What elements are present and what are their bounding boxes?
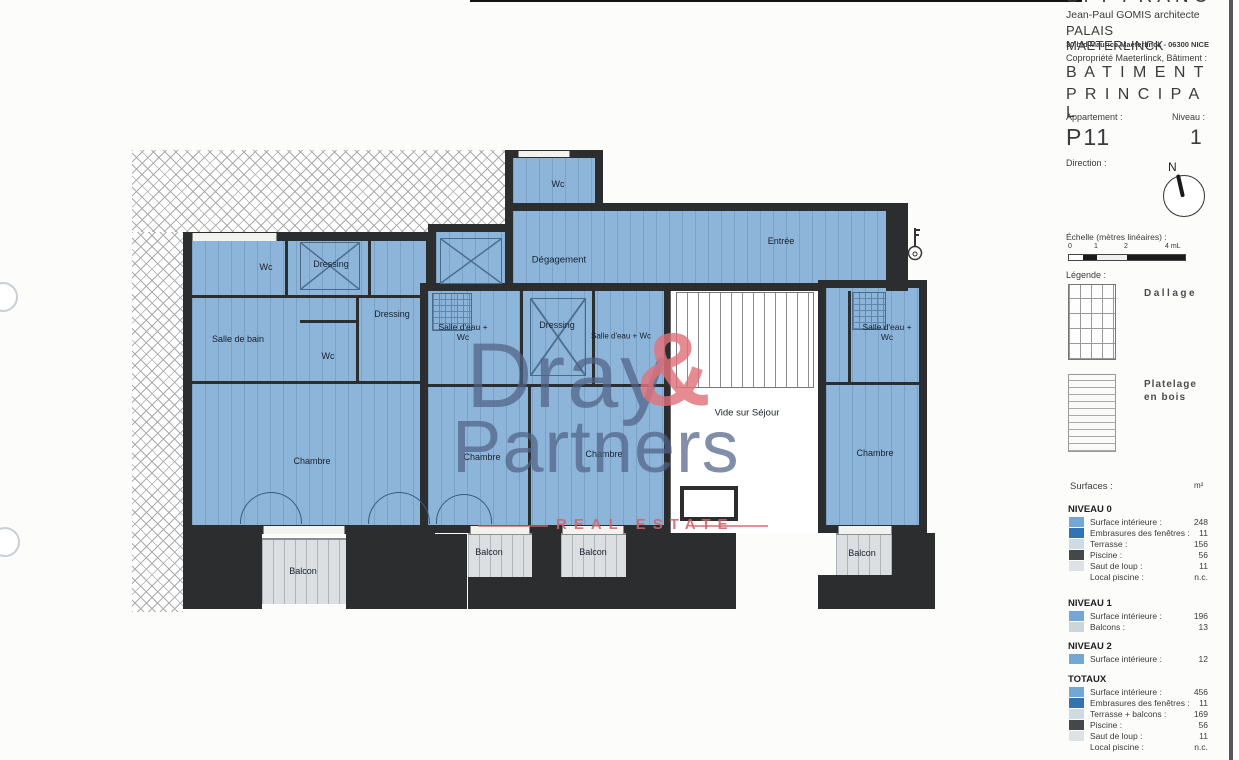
room-label: Dégagement <box>532 256 586 267</box>
surface-row-value: n.c. <box>1194 572 1208 582</box>
scale-tick: 4 mL <box>1165 243 1181 250</box>
swatch <box>1069 742 1084 752</box>
room-label: Dressing <box>539 320 575 330</box>
niveau-value: 1 <box>1190 126 1202 150</box>
surface-row-label: Piscine : <box>1090 550 1122 560</box>
compass: N <box>1066 160 1212 220</box>
surface-row-value: 13 <box>1199 622 1208 632</box>
room-label: Salle d'eau + Wc <box>434 323 492 343</box>
building-address: 30 bld Maurice Maeterlinck - 06300 NICE <box>1066 40 1209 49</box>
room-label: Dressing <box>313 259 349 269</box>
corridor-entree-block <box>505 203 908 291</box>
wall-segment <box>346 534 467 609</box>
surface-row-label: Surface intérieure : <box>1090 611 1162 621</box>
wall-segment <box>183 534 262 609</box>
swatch <box>1069 572 1084 582</box>
section-title: NIVEAU 1 <box>1068 598 1112 609</box>
room-label: Chambre <box>856 448 893 458</box>
room-label: Balcon <box>289 566 317 576</box>
company-name-clipped: SPI FRANCE <box>1066 0 1212 9</box>
surface-row-value: 456 <box>1194 687 1208 697</box>
window-opening <box>518 151 570 157</box>
surface-row-label: Saut de loup : <box>1090 561 1142 571</box>
wall-segment <box>532 533 561 577</box>
surface-row-label: Saut de loup : <box>1090 731 1142 741</box>
room-label: Wc <box>260 262 273 272</box>
surface-row-label: Surface intérieure : <box>1090 687 1162 697</box>
surface-row-value: 156 <box>1194 539 1208 549</box>
surfaces-unit: m² <box>1194 481 1203 490</box>
surface-row-value: 56 <box>1199 720 1208 730</box>
swatch <box>1069 654 1084 664</box>
title-block: SPI FRANCE Jean-Paul GOMIS architecte PA… <box>1066 0 1212 760</box>
surface-row-value: 12 <box>1199 654 1208 664</box>
scale-ticks: 0 1 2 4 mL <box>1068 243 1188 252</box>
partition-wall <box>368 241 371 297</box>
room-label: Salle d'eau + Wc <box>858 323 916 343</box>
section-title: NIVEAU 2 <box>1068 641 1112 652</box>
surface-row-label: Embrasures des fenêtres : <box>1090 528 1190 538</box>
room-label: Entrée <box>768 236 795 246</box>
swatch <box>1069 539 1084 549</box>
surface-row-label: Balcons : <box>1090 622 1125 632</box>
room-label: Salle de bain <box>212 334 264 344</box>
partition-wall <box>826 382 919 385</box>
partition-wall <box>356 297 359 383</box>
surface-row-label: Terrasse + balcons : <box>1090 709 1166 719</box>
swatch <box>1069 622 1084 632</box>
wood-planks-pattern-swatch <box>1068 374 1116 452</box>
room-label: Wc <box>552 179 565 189</box>
architect-line: Jean-Paul GOMIS architecte <box>1066 9 1200 21</box>
room-label: Chambre <box>463 452 500 462</box>
surface-row-value: 11 <box>1199 698 1208 708</box>
swatch <box>1069 720 1084 730</box>
surfaces-label: Surfaces : <box>1070 481 1113 492</box>
scale-label: Échelle (mètres linéaires) : <box>1066 232 1167 242</box>
window-opening <box>192 233 277 241</box>
wall-segment <box>818 575 892 609</box>
surface-row-label: Surface intérieure : <box>1090 654 1162 664</box>
dallage-pattern-swatch <box>1068 284 1116 360</box>
room-label: Vide sur Séjour <box>715 409 780 420</box>
surface-row-value: 11 <box>1199 561 1208 571</box>
section-title: TOTAUX <box>1068 674 1106 685</box>
surface-row-label: Embrasures des fenêtres : <box>1090 698 1190 708</box>
room-label: Wc <box>322 351 335 361</box>
scale-tick: 1 <box>1094 243 1098 250</box>
partition-wall <box>848 291 851 383</box>
appartement-label: Appartement : <box>1066 112 1123 122</box>
wall-segment <box>626 533 736 609</box>
wall-segment <box>468 577 626 609</box>
room-label: Balcon <box>475 547 503 557</box>
room-label: Salle d'eau + Wc <box>591 331 651 340</box>
partition-wall <box>192 295 426 298</box>
floor-plan: Wc Dégagement Entrée Wc Dressing Dressin… <box>0 0 1066 760</box>
terrace-hatch-area <box>132 150 506 233</box>
window-opening <box>470 526 530 534</box>
room-label: Balcon <box>579 547 607 557</box>
saut-de-loup-box <box>680 486 738 521</box>
copropriete-line: Copropriété Maeterlinck, Bâtiment : <box>1066 53 1207 63</box>
swatch <box>1069 517 1084 527</box>
wardrobe-symbol <box>440 238 502 284</box>
swatch <box>1069 561 1084 571</box>
surface-row-value: 169 <box>1194 709 1208 719</box>
surface-row-value: 11 <box>1199 731 1208 741</box>
window-opening <box>562 526 624 534</box>
surface-row-label: Surface intérieure : <box>1090 517 1162 527</box>
window-opening <box>263 526 345 534</box>
surface-row-value: n.c. <box>1194 742 1208 752</box>
surface-row-value: 56 <box>1199 550 1208 560</box>
swatch <box>1069 687 1084 697</box>
partition-wall <box>300 320 358 323</box>
surface-row-value: 248 <box>1194 517 1208 527</box>
watermark-rule <box>478 525 548 527</box>
swatch <box>1069 528 1084 538</box>
watermark-rule <box>692 525 768 527</box>
wall-segment <box>892 533 935 609</box>
terrace-hatch-area <box>132 232 183 612</box>
wall-segment <box>886 203 908 291</box>
scan-right-edge-line <box>1229 0 1233 760</box>
surface-row-label: Piscine : <box>1090 720 1122 730</box>
window-opening <box>838 526 892 534</box>
room-label: Balcon <box>848 548 876 558</box>
partition-wall <box>520 291 523 386</box>
room-label: Chambre <box>293 456 330 466</box>
staircase <box>676 292 814 388</box>
surface-row-label: Local piscine : <box>1090 572 1144 582</box>
room-label: Dressing <box>374 309 410 319</box>
section-title: NIVEAU 0 <box>1068 504 1112 515</box>
surface-row-value: 11 <box>1199 528 1208 538</box>
wardrobe-symbol <box>530 298 586 376</box>
dallage-label: Dallage <box>1144 288 1197 299</box>
partition-wall <box>528 387 531 527</box>
batiment-title: B A T I M E N T <box>1066 64 1205 82</box>
partition-wall <box>285 241 288 297</box>
swatch <box>1069 611 1084 621</box>
surface-row-value: 196 <box>1194 611 1208 621</box>
swatch <box>1069 550 1084 560</box>
surface-row-label: Local piscine : <box>1090 742 1144 752</box>
key-icon <box>906 224 924 262</box>
swatch <box>1069 731 1084 741</box>
niveau-label: Niveau : <box>1172 112 1205 122</box>
scale-tick: 0 <box>1068 243 1072 250</box>
room-label: Chambre <box>585 449 622 459</box>
legend-label: Légende : <box>1066 270 1106 280</box>
platelage-label: Platelage en bois <box>1144 378 1208 404</box>
appartement-value: P11 <box>1066 124 1111 151</box>
scale-bar <box>1068 254 1186 261</box>
swatch <box>1069 698 1084 708</box>
partition-wall <box>192 381 426 384</box>
scale-tick: 2 <box>1124 243 1128 250</box>
compass-north-label: N <box>1168 160 1177 174</box>
partition-wall <box>428 384 664 387</box>
swatch <box>1069 709 1084 719</box>
surface-row-label: Terrasse : <box>1090 539 1127 549</box>
